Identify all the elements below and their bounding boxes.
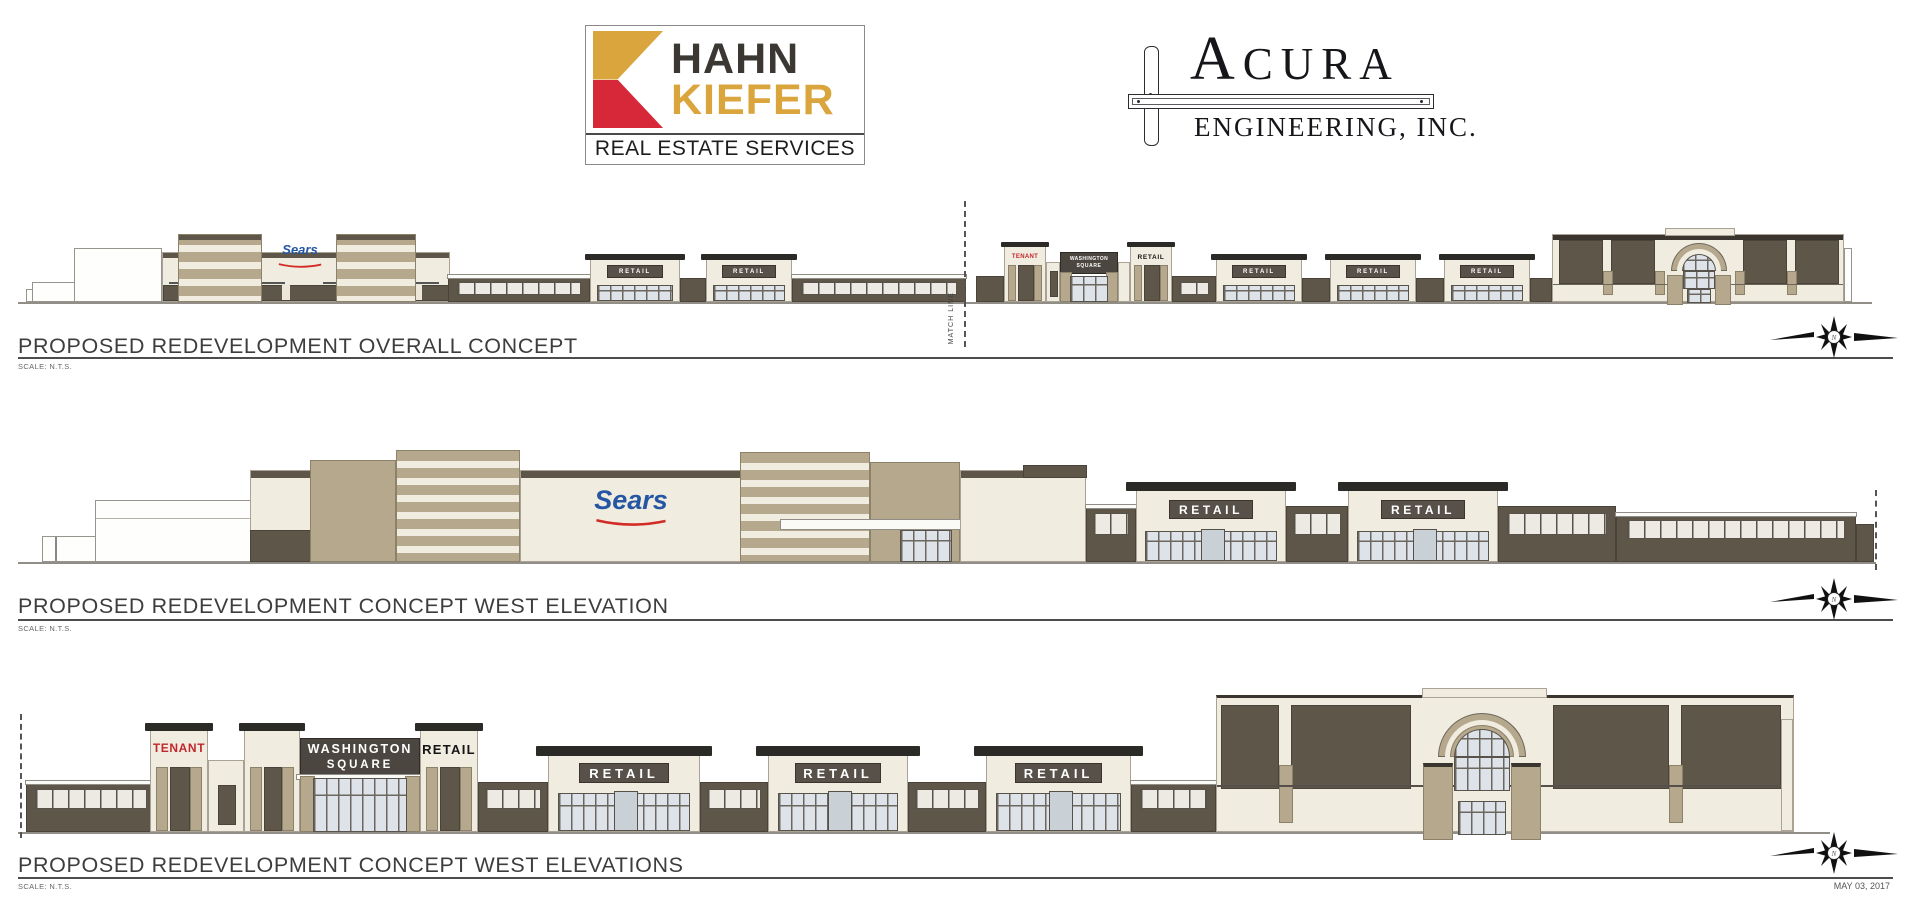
clerestory-strip — [1416, 278, 1444, 302]
gold-chevron-icon — [593, 31, 663, 80]
wall-panel — [1221, 705, 1279, 789]
mall-entry — [1411, 705, 1553, 835]
clerestory-strip — [1498, 506, 1616, 562]
building-block — [1856, 524, 1874, 562]
clerestory-strip — [1086, 506, 1136, 562]
parapet — [1665, 228, 1735, 236]
entry-tower: RETAIL — [1130, 246, 1172, 302]
wall-panel — [1681, 705, 1781, 789]
north-letter: N — [1831, 334, 1837, 342]
window-panel — [264, 767, 282, 831]
storefront-glass — [1337, 285, 1409, 301]
north-compass: N — [1768, 315, 1900, 361]
clerestory-strip — [792, 276, 966, 302]
hahn-kiefer-name-line2: KIEFER — [671, 80, 864, 121]
window-panel — [1018, 265, 1034, 301]
retail-sign: RETAIL — [579, 763, 669, 783]
hahn-kiefer-logo: HAHN KIEFER REAL ESTATE SERVICES — [585, 25, 865, 165]
parapet — [1422, 688, 1547, 698]
building-block — [74, 248, 162, 302]
mall-entry — [1663, 243, 1735, 303]
window-panel — [170, 767, 190, 831]
striped-tower — [336, 234, 416, 302]
canopy — [780, 519, 988, 530]
window-panel — [440, 767, 460, 831]
section-title-1: PROPOSED REDEVELOPMENT OVERALL CONCEPT — [18, 334, 578, 359]
match-line — [1875, 490, 1877, 570]
ground-line — [18, 832, 1830, 834]
clerestory-strip — [700, 782, 768, 832]
washington-square-sign: WASHINGTON SQUARE — [1060, 252, 1118, 274]
section-title-2: PROPOSED REDEVELOPMENT CONCEPT WEST ELEV… — [18, 594, 669, 619]
north-compass: N — [1768, 831, 1900, 877]
building-block — [95, 500, 251, 562]
retail-pavilion: RETAIL — [706, 258, 792, 302]
retail-pavilion: RETAIL — [1348, 490, 1498, 562]
entry-tower: TENANT — [150, 730, 208, 832]
sears-sign: Sears — [561, 487, 701, 532]
retail-sign: RETAIL — [1169, 500, 1253, 519]
retail-sign: RETAIL — [1460, 265, 1514, 278]
entry-door — [828, 791, 852, 831]
entry-window — [1454, 757, 1510, 791]
retail-pavilion: RETAIL — [590, 258, 680, 302]
acura-engineering-logo: ACURA ENGINEERING, INC. — [1128, 28, 1440, 150]
entry-tower: TENANT — [1004, 246, 1046, 302]
retail-pavilion: RETAIL — [986, 754, 1131, 832]
clerestory-strip — [478, 782, 548, 832]
retail-pavilion: RETAIL — [768, 754, 908, 832]
elevation-drawing-west: Sears RETAIL RETAIL — [18, 440, 1894, 562]
window-panel — [218, 785, 236, 825]
elevation-drawing-west-2: TENANT WASHINGTON SQUARE RETAIL RETAIL R… — [18, 694, 1894, 832]
scale-label-2: SCALE: N.T.S. — [18, 624, 72, 633]
tenant-sign: TENANT — [1005, 254, 1045, 260]
striped-tower — [396, 450, 520, 562]
sears-building: Sears — [520, 470, 742, 562]
wall-panel — [1795, 240, 1839, 284]
match-line-label: MATCH LINE — [948, 292, 955, 344]
retail-pavilion: RETAIL — [1444, 258, 1530, 302]
entry-door — [1413, 529, 1437, 561]
retail-sign: RETAIL — [607, 265, 663, 278]
north-compass: N — [1768, 577, 1900, 623]
entry-doors — [1458, 801, 1506, 835]
clerestory-strip — [680, 278, 706, 302]
clerestory-strip — [1172, 276, 1216, 302]
building-block — [208, 760, 244, 832]
ground-line — [18, 302, 1872, 304]
title-underline — [18, 877, 1893, 879]
sears-swoosh-icon — [571, 518, 691, 527]
wall-panel — [1743, 240, 1787, 284]
entry-door — [614, 791, 638, 831]
hahn-kiefer-chevron-icon — [586, 26, 667, 133]
clerestory-strip — [908, 782, 986, 832]
scale-label-3: SCALE: N.T.S. — [18, 882, 72, 891]
entry-glass — [313, 778, 407, 832]
retail-sign: RETAIL — [1381, 500, 1465, 519]
entry-tower: RETAIL — [420, 730, 478, 832]
section-title-3: PROPOSED REDEVELOPMENT CONCEPT WEST ELEV… — [18, 853, 684, 878]
ruler-icon — [1128, 94, 1434, 109]
clerestory-strip — [1286, 506, 1348, 562]
entry-doors — [900, 530, 952, 562]
entry-window — [1683, 271, 1715, 289]
mall-building — [1216, 695, 1794, 832]
title-underline — [18, 619, 1893, 621]
building-block — [1781, 719, 1793, 831]
wall-panel — [1611, 240, 1655, 284]
building-block — [960, 470, 1086, 562]
sears-swoosh-icon — [277, 262, 323, 269]
clerestory-strip — [1302, 278, 1330, 302]
washington-square-entry: WASHINGTON SQUARE — [300, 738, 420, 832]
entry-tower — [244, 730, 300, 832]
building-block — [1844, 248, 1852, 302]
clerestory-strip — [26, 782, 156, 832]
washington-square-entry: WASHINGTON SQUARE — [1060, 252, 1118, 302]
storefront-glass — [1451, 285, 1523, 301]
acura-subtitle: ENGINEERING, INC. — [1194, 112, 1478, 143]
date-label: MAY 03, 2017 — [1700, 881, 1890, 891]
retail-pavilion: RETAIL — [548, 754, 700, 832]
washington-square-sign: WASHINGTON SQUARE — [300, 738, 420, 776]
storefront-glass — [597, 285, 673, 301]
sears-sign: Sears — [264, 243, 336, 274]
retail-sign: RETAIL — [1131, 254, 1171, 261]
storefront-glass — [713, 285, 785, 301]
elevation-drawing-overall-concept: Sears RETAIL RETAIL MATCH LINE TENANT WA… — [18, 192, 1894, 302]
retail-sign: RETAIL — [722, 265, 776, 278]
mall-building — [1552, 234, 1844, 302]
retail-pavilion: RETAIL — [1330, 258, 1416, 302]
svg-text:N: N — [1831, 850, 1837, 858]
window-panel — [1144, 265, 1160, 301]
tan-tower — [310, 460, 396, 562]
clerestory-strip — [1131, 782, 1216, 832]
retail-sign: RETAIL — [421, 742, 477, 757]
match-line — [20, 714, 22, 838]
striped-tower — [178, 234, 262, 302]
retail-sign: RETAIL — [1346, 265, 1400, 278]
clerestory-strip — [448, 276, 590, 302]
scale-label-1: SCALE: N.T.S. — [18, 362, 72, 371]
wall-panel — [1291, 705, 1411, 789]
retail-sign: RETAIL — [1232, 265, 1286, 278]
hahn-kiefer-name-line1: HAHN — [671, 39, 864, 80]
building-block — [1118, 262, 1130, 302]
retail-pavilion: RETAIL — [1216, 258, 1302, 302]
entry-glass — [1070, 276, 1108, 302]
storefront-glass — [1223, 285, 1295, 301]
entry-door — [1201, 529, 1225, 561]
svg-text:N: N — [1831, 596, 1837, 604]
tenant-sign: TENANT — [151, 741, 207, 755]
parapet-band — [1023, 465, 1087, 478]
clerestory-strip — [1530, 278, 1552, 302]
striped-tower — [740, 452, 870, 562]
wall-panel — [1559, 240, 1603, 284]
red-chevron-icon — [593, 80, 663, 129]
wall-panel — [1553, 705, 1669, 789]
retail-pavilion: RETAIL — [1136, 490, 1286, 562]
entry-door — [1049, 791, 1073, 831]
clerestory-strip — [976, 276, 1004, 302]
retail-sign: RETAIL — [795, 763, 881, 783]
match-line — [964, 201, 966, 347]
acura-name: ACURA — [1190, 28, 1400, 90]
hahn-kiefer-tagline: REAL ESTATE SERVICES — [586, 133, 864, 164]
clerestory-strip — [1616, 514, 1856, 562]
retail-sign: RETAIL — [1015, 763, 1102, 783]
title-underline — [18, 357, 1893, 359]
building-block — [1046, 262, 1060, 302]
ground-line — [18, 562, 1876, 564]
entry-doors — [1687, 289, 1711, 303]
